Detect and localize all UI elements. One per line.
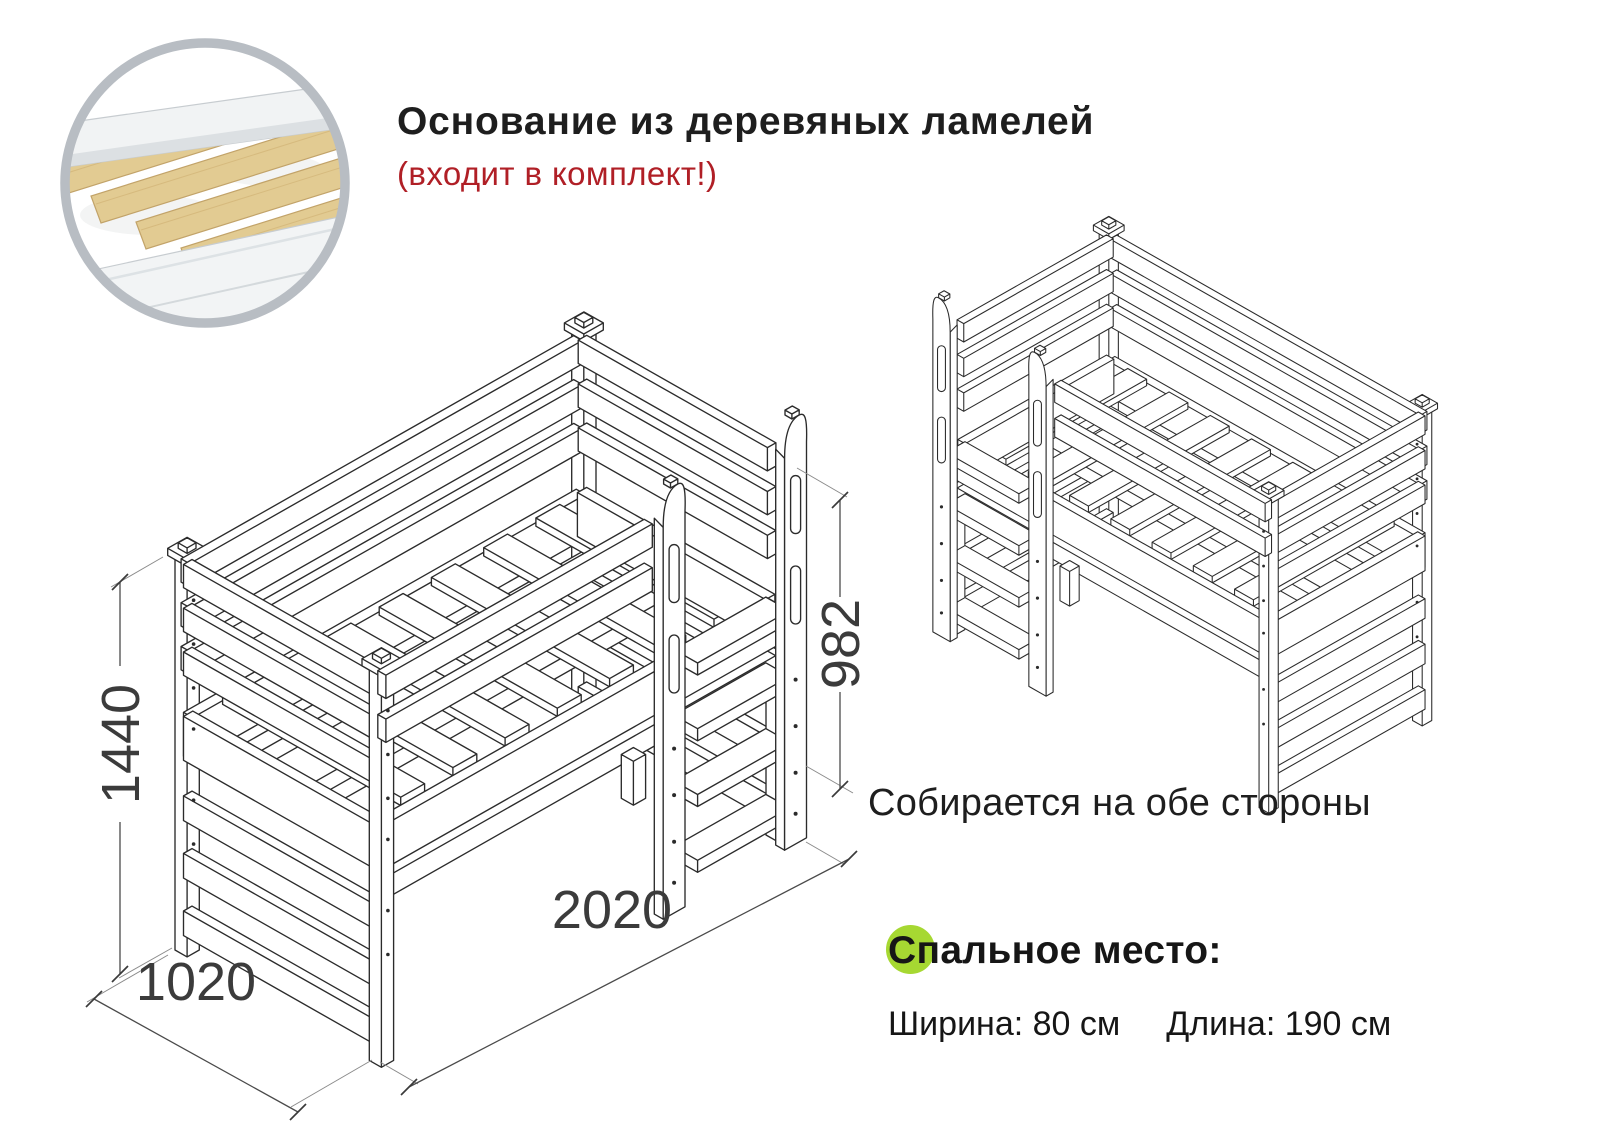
dimension-width-label: 1020	[136, 952, 256, 1012]
dimension-length-label: 2020	[552, 880, 672, 940]
bed-illustration-left	[168, 312, 807, 1067]
headline-title: Основание из деревяных ламелей	[397, 100, 1094, 144]
dimension-ladder-height-label: 982	[811, 599, 871, 689]
diagram-scene: 1440 1020 2020 982	[0, 0, 1600, 1135]
headline-subtitle-red: (входит в комплект!)	[397, 155, 717, 193]
sleeping-width-value: Ширина: 80 см	[888, 1005, 1120, 1044]
sleeping-area-title: Спальное место:	[888, 929, 1222, 973]
bed-illustration-right-mirrored	[933, 216, 1438, 813]
sleeping-area-specs: Ширина: 80 см Длина: 190 см	[888, 1005, 1391, 1044]
assembly-caption: Собирается на обе стороны	[868, 782, 1371, 825]
sleeping-length-value: Длина: 190 см	[1166, 1005, 1391, 1044]
dimension-height-label: 1440	[91, 684, 151, 804]
infographic-canvas: 1440 1020 2020 982 Основание из деревяны…	[0, 0, 1600, 1135]
